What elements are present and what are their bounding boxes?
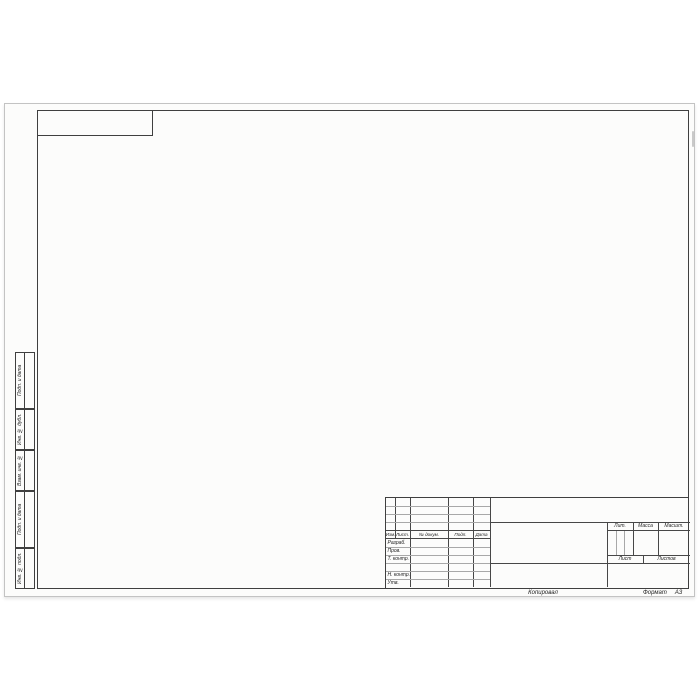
header-list-number: Лист	[607, 555, 643, 563]
item-name-cell	[491, 523, 607, 563]
lit-subdivider-line	[624, 530, 625, 555]
header-data: Дата	[473, 530, 490, 538]
title-block: Изм. Лист. № докум. Подп. Дата Разраб. П…	[385, 497, 689, 589]
revision-row-line	[386, 506, 490, 507]
margin-column-label: Взам. инв. №	[16, 451, 24, 490]
divider-line	[24, 353, 25, 408]
row-utv: Утв.	[386, 579, 412, 587]
lit-subdivider-line	[616, 530, 617, 555]
divider-line	[24, 549, 25, 588]
header-masshtab: Масшт.	[658, 522, 690, 530]
margin-column-inv-no-dubl: Инв. № дубл.	[15, 409, 35, 450]
row-prov: Пров.	[386, 547, 412, 555]
header-list: Лист.	[395, 530, 410, 538]
row-n-kontr: Н. контр.	[386, 571, 412, 579]
revision-row-line	[386, 522, 490, 523]
header-massa: Масса	[633, 522, 658, 530]
margin-column-label: Инв. № дубл.	[16, 410, 24, 449]
drawing-sheet: Подп. и дата Инв. № дубл. Взам. инв. № П…	[4, 103, 695, 597]
header-no-dokum: № докум.	[410, 530, 448, 538]
row-razrab: Разраб.	[386, 538, 412, 547]
designation-cell	[491, 498, 690, 522]
margin-column-label: Подп. и дата	[16, 353, 24, 408]
scan-artifact-mark	[692, 131, 694, 147]
row-t-kontr: Т. контр.	[386, 555, 412, 563]
revision-row-line	[386, 514, 490, 515]
margin-column-vzam-inv-no: Взам. инв. №	[15, 450, 35, 491]
format-note: Формат А3	[643, 590, 682, 599]
top-left-designation-box	[37, 110, 153, 136]
copied-label: Копировал	[503, 590, 583, 599]
margin-column-inv-no-podl: Инв. № подл.	[15, 548, 35, 589]
material-cell	[491, 564, 607, 587]
format-value: А3	[675, 590, 682, 599]
divider-line	[473, 498, 474, 587]
signature-row-line	[386, 563, 490, 564]
organization-cell	[608, 564, 690, 587]
format-label: Формат	[643, 590, 667, 599]
divider-line	[24, 451, 25, 490]
margin-column-label: Инв. № подл.	[16, 549, 24, 588]
divider-line	[24, 410, 25, 449]
header-podp: Подп.	[448, 530, 473, 538]
header-lit: Лит.	[607, 522, 633, 530]
header-listov: Листов	[643, 555, 690, 563]
header-izm: Изм.	[386, 530, 395, 538]
divider-line	[607, 530, 690, 531]
margin-column-label: Подп. и дата	[16, 492, 24, 547]
divider-line	[448, 498, 449, 587]
margin-column-podp-i-data-lower: Подп. и дата	[15, 491, 35, 548]
divider-line	[24, 492, 25, 547]
margin-column-podp-i-data-upper: Подп. и дата	[15, 352, 35, 409]
